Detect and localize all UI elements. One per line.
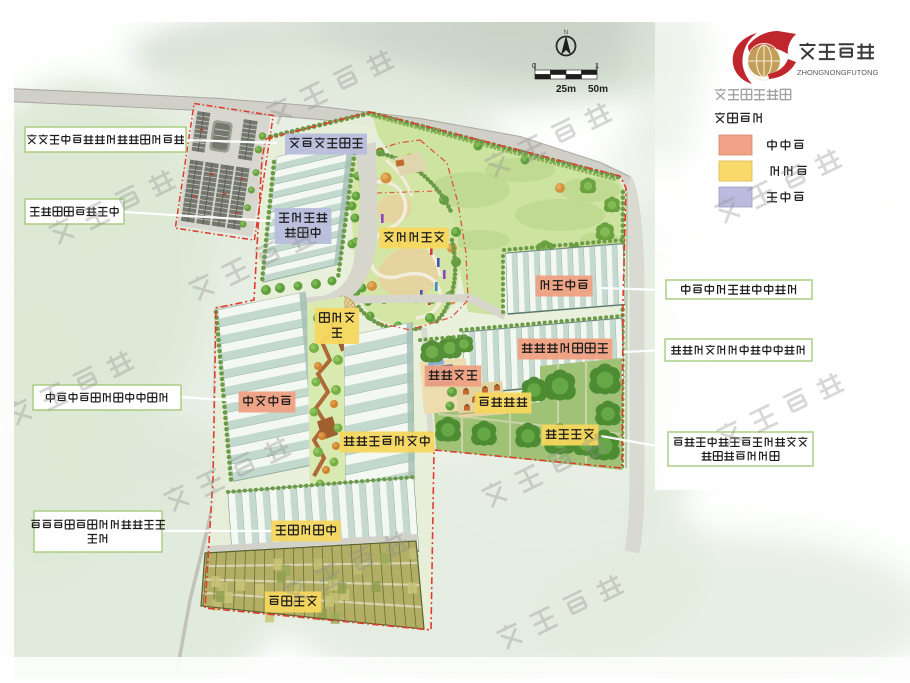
- svg-text:50m: 50m: [588, 84, 608, 95]
- svg-text:1: 1: [595, 63, 599, 70]
- svg-text:0: 0: [532, 63, 536, 70]
- svg-text:N: N: [564, 29, 569, 36]
- svg-text:ZHONGNONGFUTONG: ZHONGNONGFUTONG: [797, 68, 879, 77]
- svg-text:25m: 25m: [556, 84, 576, 95]
